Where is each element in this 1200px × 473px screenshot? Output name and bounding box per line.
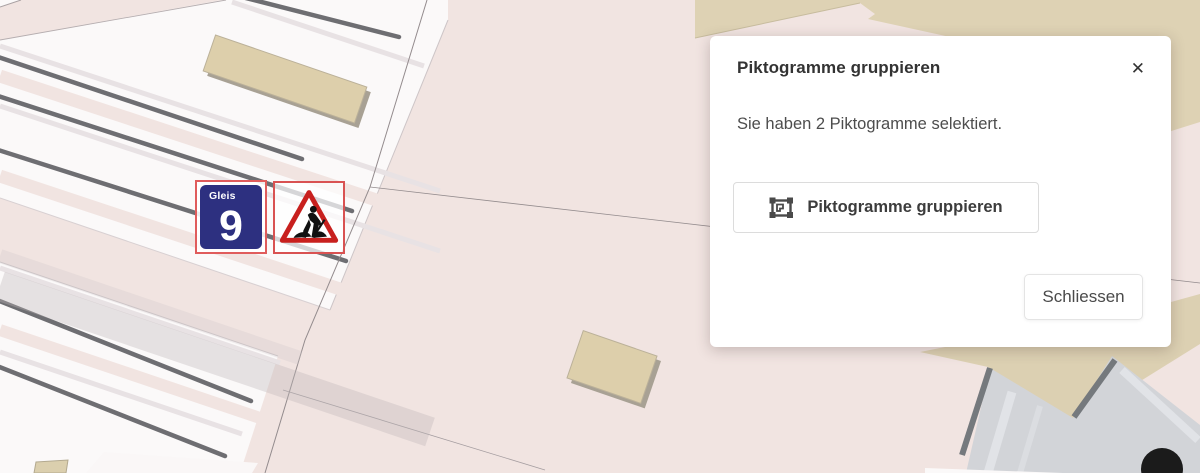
pictogram-roadworks[interactable] [273, 181, 345, 254]
group-pictograms-button[interactable]: Piktogramme gruppieren [733, 182, 1039, 233]
close-icon[interactable]: ✕ [1131, 60, 1145, 77]
track-sign: Gleis 9 [200, 185, 262, 249]
roadworks-icon [277, 187, 341, 249]
group-button-label: Piktogramme gruppieren [807, 198, 1002, 217]
dialog-header: Piktogramme gruppieren ✕ [710, 36, 1171, 78]
schliessen-button[interactable]: Schliessen [1024, 274, 1143, 320]
group-objects-icon [769, 197, 794, 219]
group-pictograms-dialog: Piktogramme gruppieren ✕ Sie haben 2 Pik… [710, 36, 1171, 347]
track-sign-label: Gleis [209, 190, 236, 202]
dialog-body-text: Sie haben 2 Piktogramme selektiert. [737, 115, 1144, 134]
track-sign-number: 9 [200, 205, 262, 248]
pictogram-track-9[interactable]: Gleis 9 [195, 180, 267, 254]
small-structure [34, 460, 68, 473]
dialog-title: Piktogramme gruppieren [737, 58, 940, 78]
